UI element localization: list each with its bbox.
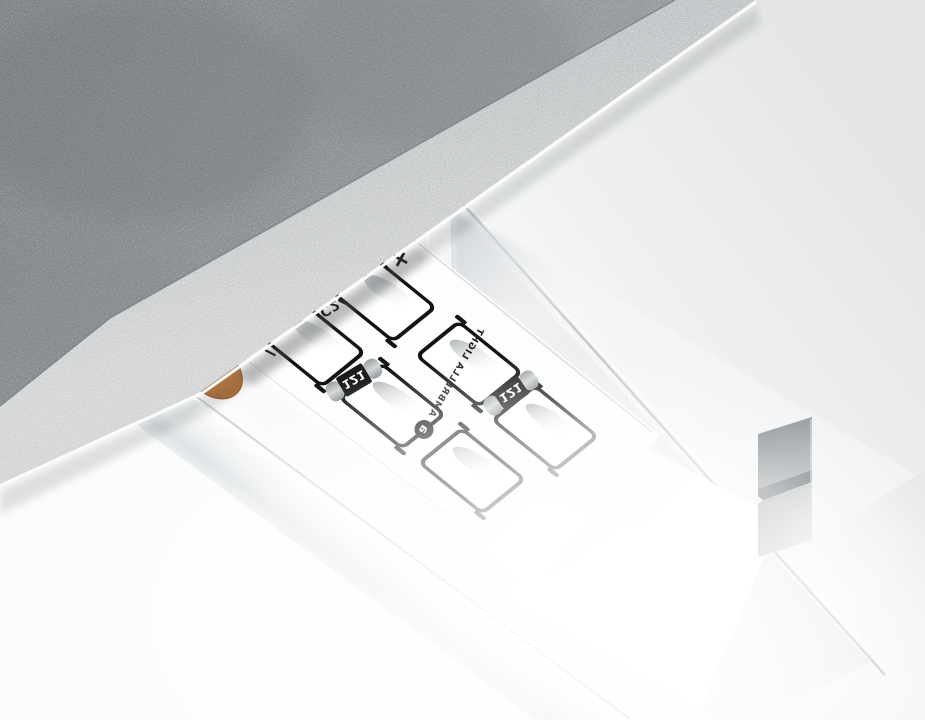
- product-render: + − DC24V ↓ 121 121 AMBRELLA LIGHT a: [0, 0, 925, 720]
- render-canvas: + − DC24V ↓ 121 121 AMBRELLA LIGHT a: [0, 0, 925, 720]
